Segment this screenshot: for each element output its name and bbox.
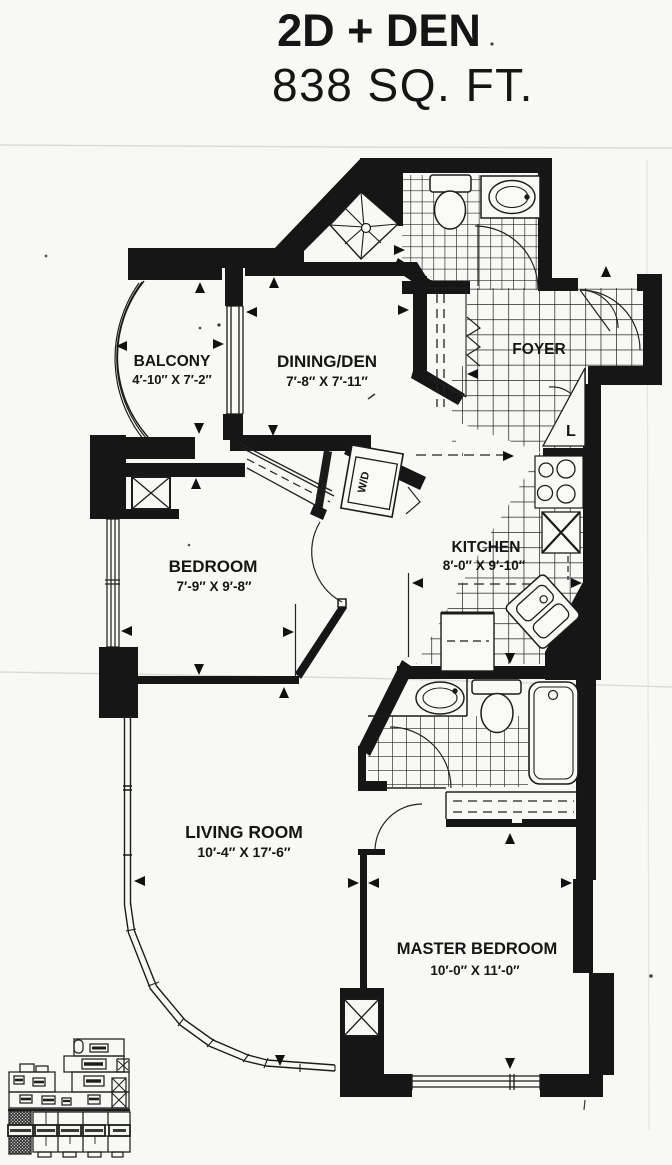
svg-text:7′-8″ X 7′-11″: 7′-8″ X 7′-11″	[286, 374, 368, 389]
svg-text:DINING/DEN: DINING/DEN	[277, 352, 377, 371]
svg-text:10′-0″ X 11′-0″: 10′-0″ X 11′-0″	[430, 963, 520, 978]
svg-text:7′-9″ X 9′-8″: 7′-9″ X 9′-8″	[177, 579, 252, 594]
svg-text:2D + DEN: 2D + DEN	[277, 5, 481, 56]
svg-text:838 SQ. FT.: 838 SQ. FT.	[272, 59, 534, 111]
svg-text:BALCONY: BALCONY	[134, 353, 211, 370]
svg-text:4′-10″ X 7′-2″: 4′-10″ X 7′-2″	[132, 372, 211, 387]
svg-text:8′-0″ X 9′-10″: 8′-0″ X 9′-10″	[443, 558, 526, 573]
svg-text:MASTER BEDROOM: MASTER BEDROOM	[397, 940, 557, 958]
svg-text:BEDROOM: BEDROOM	[169, 557, 258, 576]
svg-text:LIVING ROOM: LIVING ROOM	[185, 822, 303, 842]
svg-text:KITCHEN: KITCHEN	[452, 539, 521, 556]
svg-text:FOYER: FOYER	[512, 341, 565, 358]
svg-text:L: L	[566, 423, 576, 440]
svg-text:10′-4″ X 17′-6″: 10′-4″ X 17′-6″	[197, 844, 291, 860]
